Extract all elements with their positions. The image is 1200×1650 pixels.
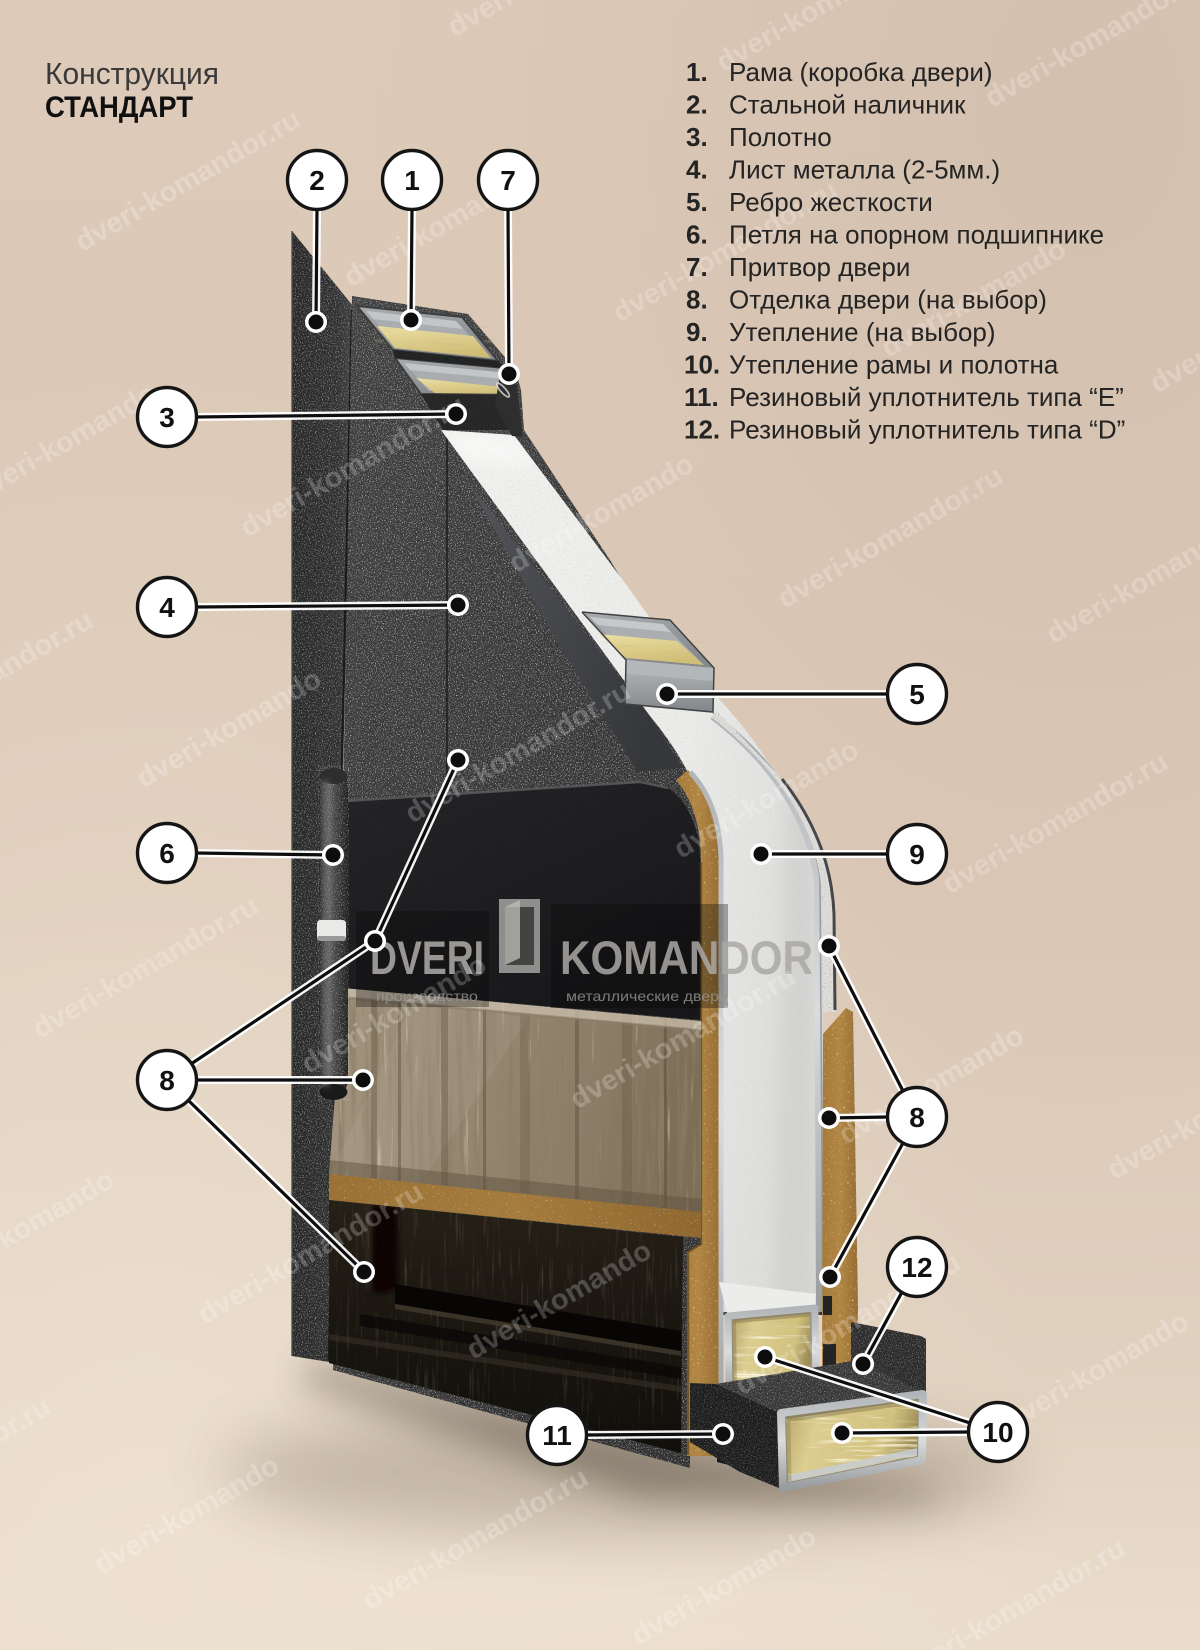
svg-text:12: 12: [901, 1252, 932, 1283]
svg-text:11: 11: [542, 1420, 572, 1451]
svg-text:8: 8: [909, 1102, 925, 1133]
svg-text:3.: 3.: [686, 122, 708, 152]
svg-text:3: 3: [159, 402, 175, 433]
svg-text:5: 5: [909, 679, 925, 710]
svg-text:6.: 6.: [686, 220, 708, 250]
svg-text:Утепление (на выбор): Утепление (на выбор): [729, 317, 996, 347]
svg-text:2.: 2.: [686, 90, 708, 120]
svg-text:Лист металла (2-5мм.): Лист металла (2-5мм.): [729, 155, 1000, 185]
svg-text:9: 9: [909, 839, 925, 870]
svg-text:Полотно: Полотно: [729, 122, 832, 152]
svg-text:11.: 11.: [684, 382, 719, 412]
svg-text:8.: 8.: [686, 285, 708, 315]
svg-text:Притвор двери: Притвор двери: [729, 252, 910, 282]
svg-text:5.: 5.: [686, 187, 708, 217]
svg-text:Резиновый уплотнитель типа “D”: Резиновый уплотнитель типа “D”: [729, 415, 1125, 445]
svg-text:7.: 7.: [686, 252, 708, 282]
svg-text:7: 7: [500, 165, 516, 196]
svg-text:1.: 1.: [686, 57, 708, 87]
svg-text:10: 10: [982, 1417, 1013, 1448]
svg-text:4.: 4.: [686, 155, 708, 185]
svg-text:Утепление рамы и полотна: Утепление рамы и полотна: [729, 350, 1059, 380]
svg-text:СТАНДАРТ: СТАНДАРТ: [45, 91, 193, 124]
svg-text:8: 8: [159, 1065, 175, 1096]
svg-text:2: 2: [309, 165, 325, 196]
svg-text:Стальной наличник: Стальной наличник: [729, 90, 966, 120]
svg-text:9.: 9.: [686, 317, 708, 347]
svg-text:6: 6: [159, 838, 175, 869]
svg-text:Резиновый уплотнитель типа “Е”: Резиновый уплотнитель типа “Е”: [729, 382, 1124, 412]
svg-text:1: 1: [404, 165, 420, 196]
svg-text:10.: 10.: [684, 350, 720, 380]
svg-text:Отделка двери (на выбор): Отделка двери (на выбор): [729, 285, 1047, 315]
svg-text:Конструкция: Конструкция: [45, 56, 219, 91]
svg-text:4: 4: [159, 592, 175, 623]
svg-text:Рама (коробка двери): Рама (коробка двери): [729, 57, 993, 87]
svg-text:Ребро жесткости: Ребро жесткости: [729, 187, 933, 217]
svg-text:12.: 12.: [684, 415, 720, 445]
svg-text:Петля на опорном подшипнике: Петля на опорном подшипнике: [729, 220, 1104, 250]
